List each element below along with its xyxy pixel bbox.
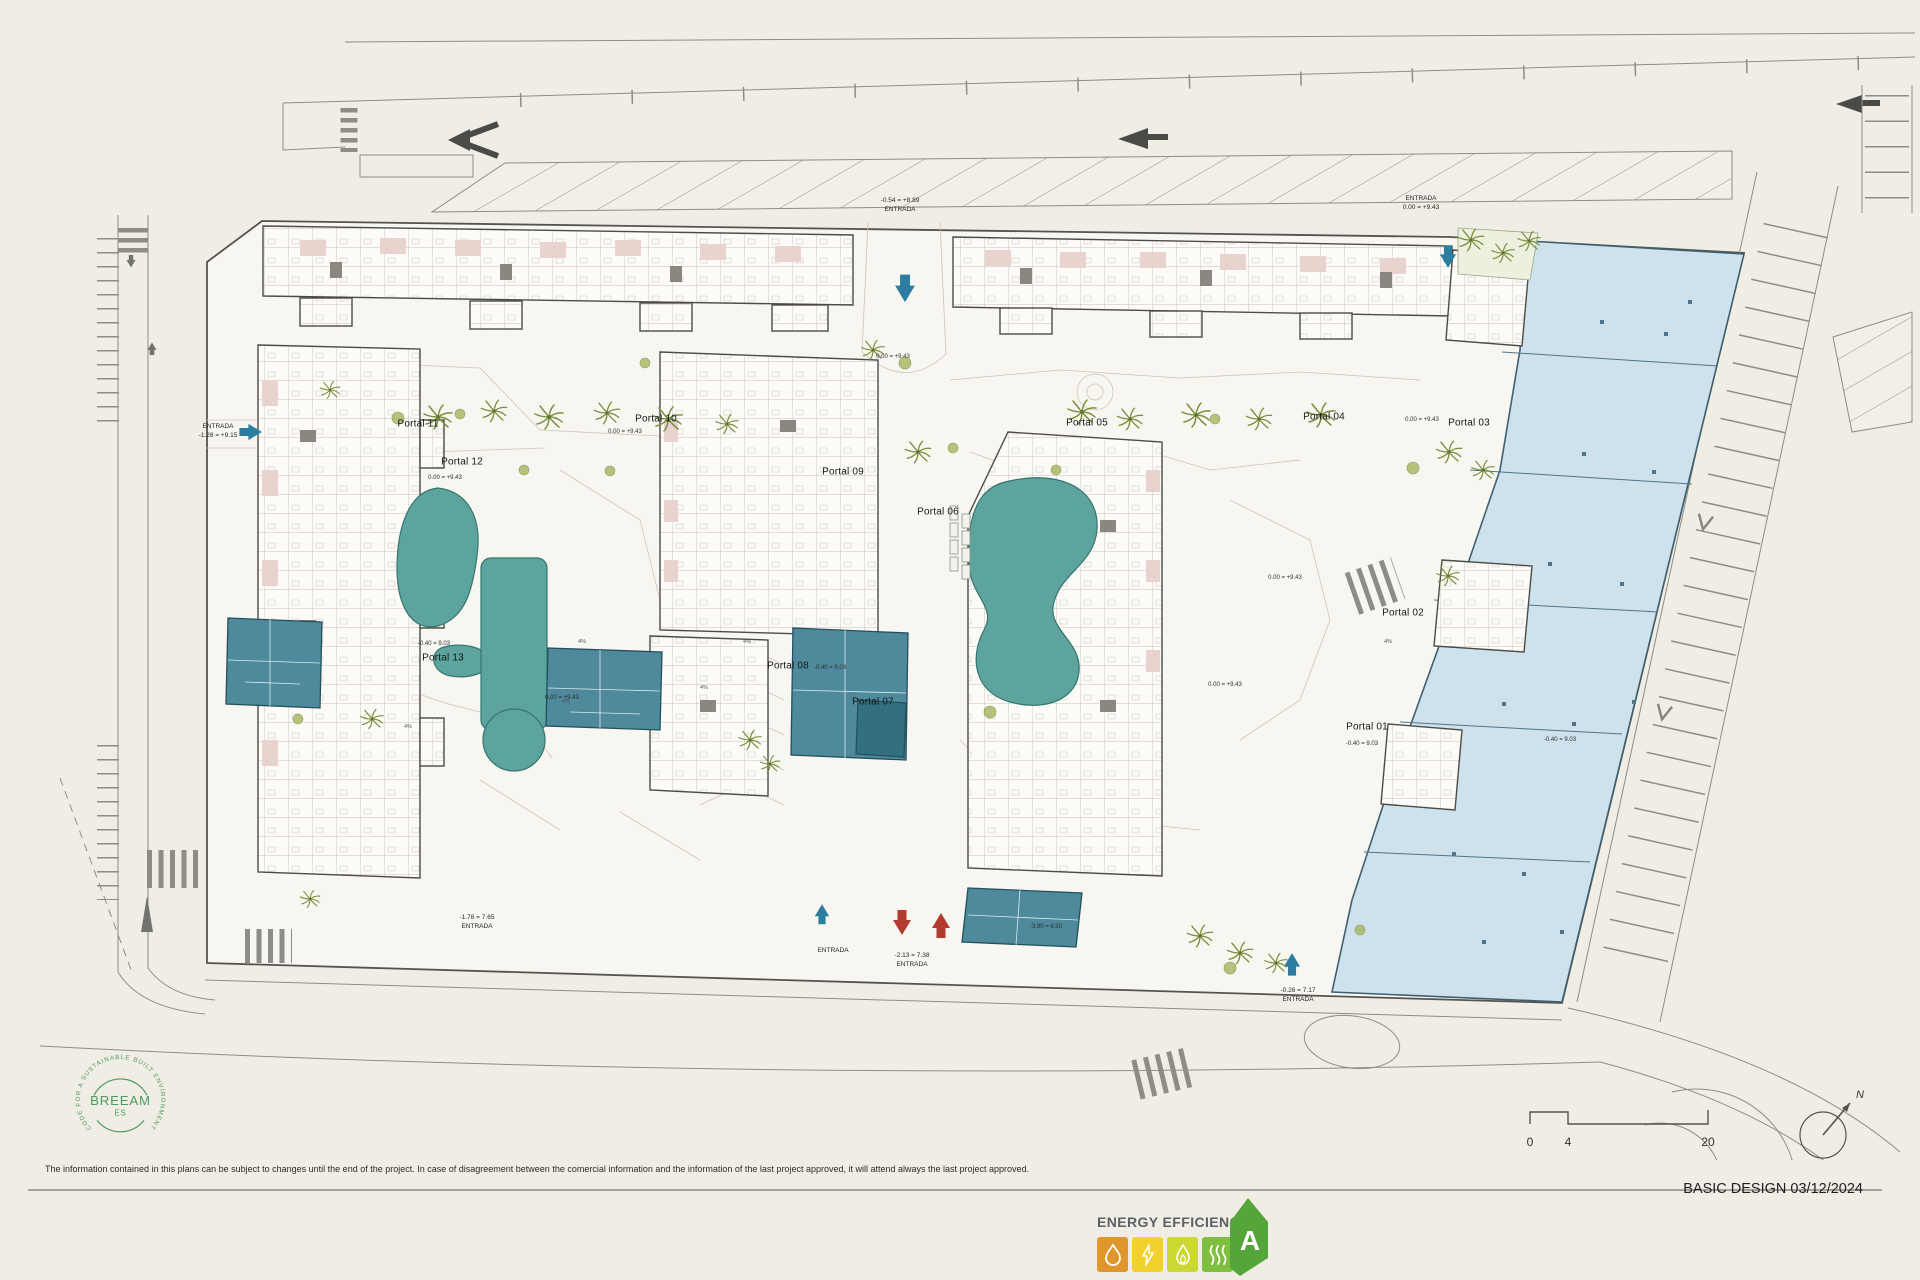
elevation-label: 0.00 = +9.43 (1268, 575, 1302, 581)
slope-label: 4% (743, 639, 751, 645)
entrance-label: -0.54 = +8.89 ENTRADA (881, 196, 920, 214)
pool-lap (481, 558, 547, 730)
entrance-label: -2.13 = 7.38 ENTRADA (895, 951, 930, 969)
elevation-label: 0.00 = +9.43 (1208, 682, 1242, 688)
footer-divider (28, 1189, 1882, 1191)
portal-label: Portal 01 (1346, 722, 1388, 733)
elevation-label: -0.40 = 9.03 (1544, 737, 1576, 743)
portal-label: Portal 13 (422, 653, 464, 664)
title-block-phase: BASIC DESIGN 03/12/2024 (1683, 1181, 1863, 1197)
water-drop-icon (1097, 1237, 1128, 1272)
breeam-logo: CODE FOR A SUSTAINABLE BUILT ENVIRONMENT… (58, 1036, 183, 1161)
breeam-region: ES (115, 1109, 127, 1118)
entrance-label: ENTRADA (817, 946, 848, 955)
portal-label: Portal 10 (635, 414, 677, 425)
elevation-label: 0.00 = +9.43 (428, 475, 462, 481)
compass-label: N (1856, 1089, 1864, 1101)
amenity-block-center (546, 648, 662, 730)
north-arrow-icon: N (1778, 1082, 1878, 1172)
elevation-label: 0.00 = +9.43 (608, 429, 642, 435)
elevation-label: 0.00 = +9.43 (876, 354, 910, 360)
elevation-label: -0.40 = 9.03 (814, 665, 846, 671)
portal-label: Portal 05 (1066, 418, 1108, 429)
scale-bar: 0 4 20 (1522, 1100, 1732, 1160)
disclaimer-text: The information contained in this plans … (45, 1164, 1029, 1174)
svg-text:20: 20 (1701, 1135, 1715, 1149)
portal-label: Portal 12 (441, 457, 483, 468)
entrance-label: -0.26 = 7.17 ENTRADA (1281, 986, 1316, 1004)
entrance-label: -1.78 = 7.65 ENTRADA (460, 913, 495, 931)
breeam-name: BREEAM (90, 1093, 151, 1108)
portal-label: Portal 08 (767, 661, 809, 672)
energy-efficiency-title: ENERGY EFFICIENCY (1097, 1214, 1250, 1230)
core-portal-01 (1381, 724, 1462, 810)
slope-label: 4% (562, 699, 570, 705)
yield-triangle-icon (141, 896, 153, 932)
portal-label: Portal 06 (917, 507, 959, 518)
slope-label: 4% (1384, 639, 1392, 645)
portal-label: Portal 11 (397, 419, 438, 430)
green-pocket (1458, 228, 1538, 280)
svg-text:4: 4 (1565, 1135, 1572, 1149)
portal-label: Portal 03 (1448, 418, 1490, 429)
flame-icon (1167, 1237, 1198, 1272)
elevation-label: -3.90 = 6.50 (1030, 924, 1062, 930)
slope-label: 4% (404, 724, 412, 730)
energy-efficiency-badge: ENERGY EFFICIENCY A (1096, 1194, 1336, 1280)
elevation-label: -0.40 = 9.03 (1346, 741, 1378, 747)
site-plan-sheet: Portal 11Portal 10Portal 12Portal 13Port… (0, 0, 1920, 1280)
slope-label: 4% (700, 685, 708, 691)
building-portal-09-08 (660, 352, 878, 636)
portal-label: Portal 09 (822, 467, 864, 478)
amenity-block-west (226, 618, 322, 708)
entrance-label: ENTRADA -1.28 = +9.15 (199, 422, 238, 440)
traffic-arrow-icon (448, 95, 1880, 151)
portal-label: Portal 02 (1382, 608, 1424, 619)
elevation-label: 0.00 = +9.43 (1405, 417, 1439, 423)
energy-icons-row (1097, 1237, 1233, 1272)
building-portal-12-13 (258, 345, 420, 878)
energy-rating-letter: A (1240, 1225, 1260, 1256)
portal-label: Portal 04 (1303, 412, 1345, 423)
energy-rating-arrow: A (1228, 1194, 1272, 1280)
entrance-label: ENTRADA 0.00 = +9.43 (1403, 194, 1440, 212)
svg-text:0: 0 (1527, 1135, 1534, 1149)
building-portal-11-10 (263, 226, 853, 305)
elevation-label: -0.40 = 9.03 (418, 641, 450, 647)
portal-label: Portal 07 (852, 697, 894, 708)
slope-label: 4% (578, 639, 586, 645)
lightning-icon (1132, 1237, 1163, 1272)
site-plan-drawing (0, 0, 1920, 1160)
